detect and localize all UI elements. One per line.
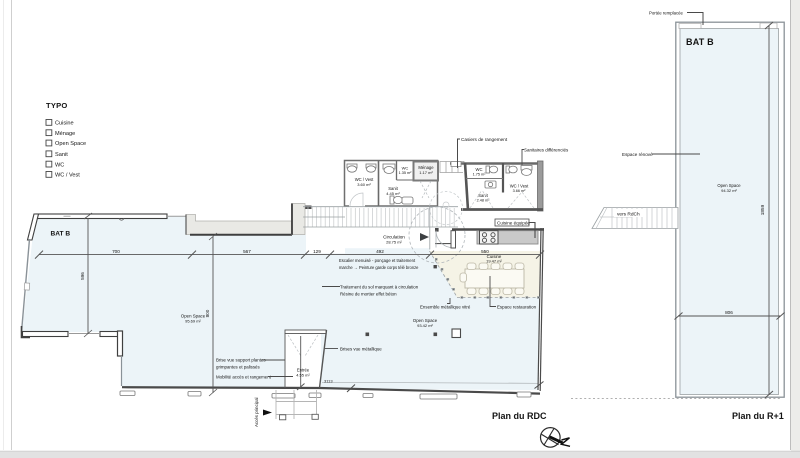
svg-text:Espace rénové: Espace rénové — [622, 152, 653, 157]
svg-text:4.55 m²: 4.55 m² — [296, 373, 310, 378]
svg-text:grimpantes et palissés: grimpantes et palissés — [216, 365, 260, 370]
svg-text:93.42 m²: 93.42 m² — [417, 323, 433, 328]
svg-text:Résine de mortier effet béton: Résine de mortier effet béton — [340, 292, 397, 297]
svg-text:Plan du R+1: Plan du R+1 — [732, 411, 784, 421]
svg-text:3113: 3113 — [324, 379, 333, 384]
svg-text:700: 700 — [112, 249, 120, 254]
svg-text:Mobilité accès et rangement: Mobilité accès et rangement — [216, 375, 272, 380]
svg-text:Brises vue métallique: Brises vue métallique — [340, 347, 382, 352]
svg-text:WC: WC — [55, 162, 64, 168]
svg-text:94.32 m²: 94.32 m² — [721, 188, 737, 193]
svg-text:WC / Vest: WC / Vest — [510, 184, 529, 189]
svg-text:28.75 m²: 28.75 m² — [386, 240, 402, 245]
svg-text:marche → Peinture garde corps: marche → Peinture garde corps télé bronz… — [339, 265, 419, 270]
svg-text:806: 806 — [725, 310, 733, 315]
svg-text:BAT B: BAT B — [51, 231, 71, 238]
svg-text:Open Space: Open Space — [55, 141, 86, 147]
svg-text:WC: WC — [476, 167, 483, 172]
svg-text:vers RdCh: vers RdCh — [617, 212, 640, 218]
svg-text:129: 129 — [313, 249, 321, 254]
svg-text:596: 596 — [80, 272, 85, 280]
svg-text:Sanitaires différenciés: Sanitaires différenciés — [524, 148, 569, 153]
svg-text:567: 567 — [243, 249, 251, 254]
svg-text:Cuisine équipée: Cuisine équipée — [497, 221, 530, 226]
svg-text:95.69 m²: 95.69 m² — [185, 319, 201, 324]
svg-text:1.75 m²: 1.75 m² — [473, 173, 487, 177]
svg-text:1859: 1859 — [760, 204, 765, 215]
svg-text:Portée remplacée: Portée remplacée — [649, 11, 684, 16]
svg-text:Brise vue support plantes: Brise vue support plantes — [216, 358, 266, 363]
svg-text:WC: WC — [402, 166, 409, 171]
svg-text:3.66 m²: 3.66 m² — [513, 189, 527, 193]
svg-text:Traitement du sol marquant à c: Traitement du sol marquant à circulation — [340, 285, 419, 290]
svg-text:Sanit: Sanit — [55, 152, 68, 158]
svg-text:Plan du RDC: Plan du RDC — [492, 411, 547, 421]
svg-text:WC / Vest: WC / Vest — [55, 173, 80, 179]
svg-text:550: 550 — [481, 249, 489, 254]
svg-text:492: 492 — [376, 249, 384, 254]
svg-text:BAT B: BAT B — [686, 37, 714, 47]
svg-text:3.60 m²: 3.60 m² — [357, 182, 371, 187]
svg-text:TYPO: TYPO — [46, 101, 67, 110]
svg-text:Ensemble métallique vitré: Ensemble métallique vitré — [420, 305, 471, 310]
svg-text:Cuisine: Cuisine — [55, 121, 74, 127]
svg-text:4.45 m²: 4.45 m² — [386, 191, 400, 196]
svg-text:Escalier menuisé - ponçage et: Escalier menuisé - ponçage et traitement — [339, 258, 416, 263]
svg-text:Casiers de rangement: Casiers de rangement — [461, 137, 508, 142]
svg-text:Accès principal: Accès principal — [254, 397, 259, 427]
svg-text:1.17 m²: 1.17 m² — [419, 170, 433, 175]
svg-text:Ménage: Ménage — [55, 131, 75, 137]
svg-text:1.35 m²: 1.35 m² — [399, 171, 413, 175]
svg-text:800: 800 — [205, 309, 210, 317]
svg-text:Espace restauration: Espace restauration — [497, 305, 537, 310]
